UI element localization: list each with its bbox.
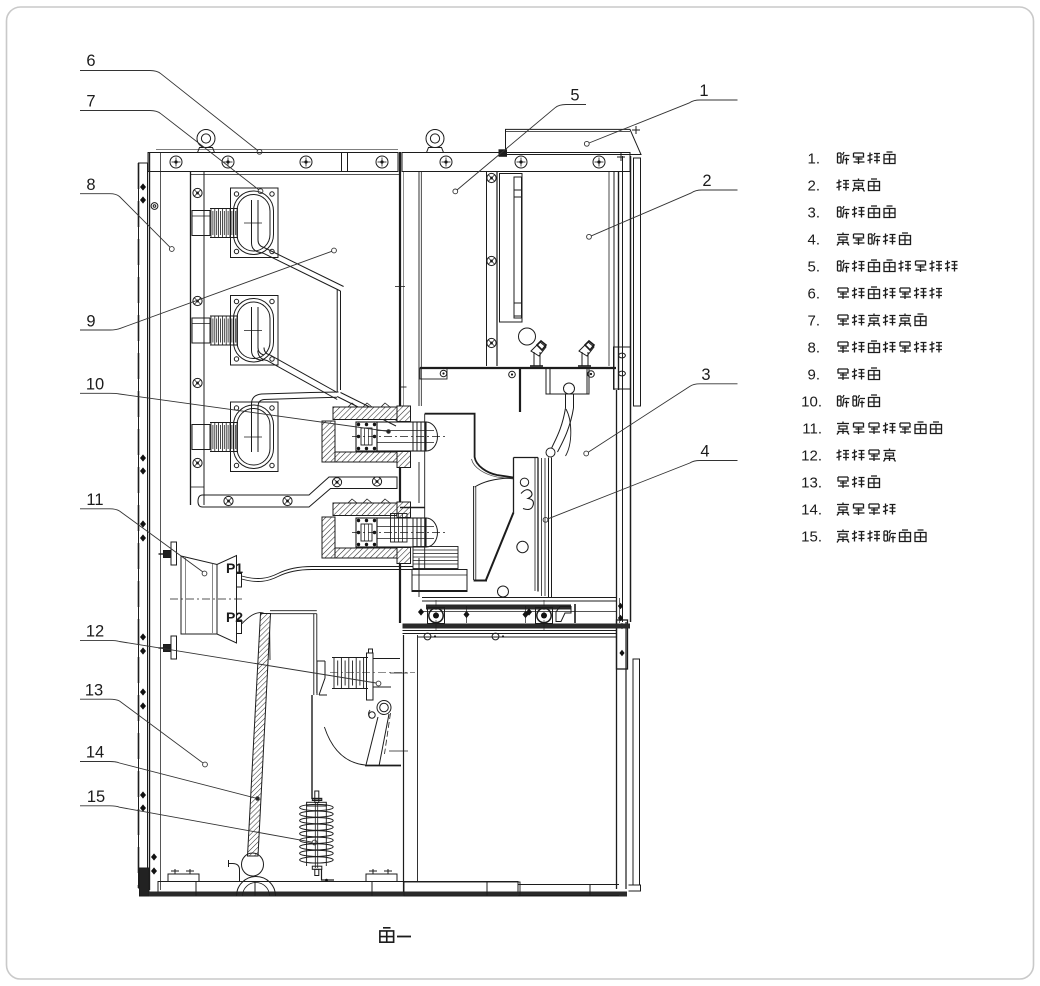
svg-text:1: 1 [699,82,708,100]
svg-text:12: 12 [86,623,104,641]
svg-text:4: 4 [700,443,709,461]
svg-text:7: 7 [86,93,95,111]
svg-text:14: 14 [86,744,104,762]
svg-text:12.: 12. [801,448,822,465]
svg-text:8.: 8. [807,340,820,357]
svg-text:8: 8 [86,176,95,194]
svg-text:6: 6 [86,52,95,70]
svg-text:P2: P2 [226,609,243,625]
svg-text:9.: 9. [807,367,820,384]
svg-text:9: 9 [86,313,95,331]
svg-text:2.: 2. [807,178,820,195]
svg-text:5.: 5. [807,259,820,276]
svg-text:10.: 10. [801,394,822,411]
svg-text:11.: 11. [802,421,822,438]
svg-text:3.: 3. [807,205,820,222]
svg-text:6.: 6. [807,286,820,303]
svg-text:4.: 4. [807,232,820,249]
svg-text:7.: 7. [807,313,820,330]
svg-text:13: 13 [85,682,103,700]
svg-text:3: 3 [701,366,710,384]
svg-text:2: 2 [702,172,711,190]
svg-text:10: 10 [86,376,104,394]
svg-text:14.: 14. [801,502,822,519]
svg-text:P1: P1 [226,560,243,576]
svg-text:5: 5 [570,87,579,105]
svg-text:1.: 1. [807,151,820,168]
svg-text:13.: 13. [801,475,822,492]
svg-text:15: 15 [87,788,105,806]
svg-text:11: 11 [86,491,103,509]
svg-text:15.: 15. [801,529,822,546]
